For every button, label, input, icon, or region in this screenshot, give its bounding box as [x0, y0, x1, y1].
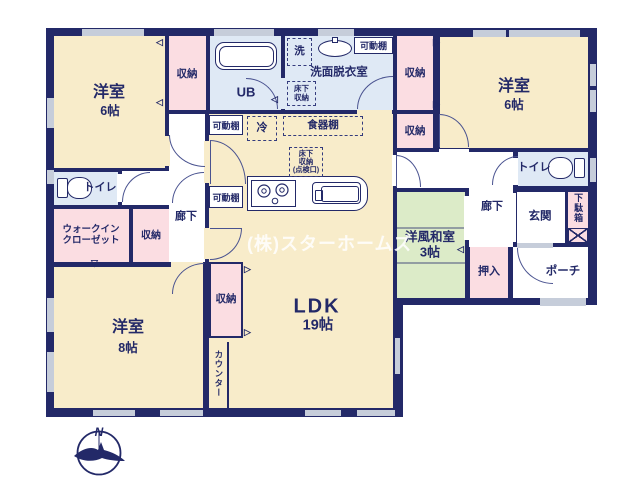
underfloor-inspection-label: (点検口) — [293, 166, 319, 174]
label-ldk: LDK — [293, 296, 340, 319]
watermark: (株)スターホームズ — [247, 230, 412, 256]
label-counter: カウンター — [213, 350, 223, 398]
movable-shelf: 可動棚 — [209, 186, 243, 208]
label-washroom: 洗面脱衣室 — [310, 66, 368, 79]
label-walk-in-closet-line2: クローゼット — [62, 236, 119, 247]
window — [305, 410, 341, 416]
bifold-marker: ▷ — [244, 265, 251, 274]
label-ldk-size: 19帖 — [303, 318, 334, 335]
window — [47, 98, 54, 128]
counter-divider-line — [227, 342, 229, 408]
washbasin-tap-icon — [332, 37, 338, 43]
label-unit-bath: UB — [237, 86, 256, 101]
label-oshiire: 押入 — [478, 266, 500, 279]
bifold-marker: ◁ — [156, 98, 163, 107]
stove-icon — [251, 180, 296, 207]
window — [473, 30, 506, 37]
window — [590, 158, 596, 182]
movable-shelf-label: 可動棚 — [212, 191, 239, 204]
window — [318, 29, 354, 36]
label-japanese-room: 洋風和室 — [405, 230, 455, 244]
door-opening — [357, 110, 392, 115]
underfloor-inspection: 床下 収納 (点検口) — [289, 147, 323, 177]
tatami-line — [397, 262, 465, 264]
label-bedroom-sw-size: 8帖 — [118, 341, 137, 355]
label-hallway-right: 廊下 — [481, 201, 503, 214]
label-entrance: 玄関 — [529, 210, 552, 223]
label-porch: ポーチ — [546, 265, 581, 278]
window — [590, 64, 596, 86]
bifold-marker: ◁ — [156, 38, 163, 47]
label-bedroom-sw: 洋室 — [112, 319, 144, 337]
shoe-cabinet-x-icon — [568, 228, 588, 243]
refrigerator-space: 冷 — [247, 116, 277, 141]
label-bedroom-ne-size: 6帖 — [504, 98, 523, 112]
movable-shelf: 可動棚 — [209, 115, 243, 135]
entrance-step-line — [513, 193, 516, 242]
washer-space: 洗 — [287, 38, 312, 66]
label-toilet-right: トイレ — [518, 162, 551, 175]
floor-plan: 可動棚 可動棚 可動棚 洗 床下 収納 冷 食器棚 床下 収納 (点検口) ◁ … — [0, 0, 640, 480]
label-bedroom-nw: 洋室 — [93, 84, 125, 102]
bathtub-icon — [215, 42, 277, 70]
window — [357, 410, 395, 416]
window — [590, 90, 596, 112]
movable-shelf: 可動棚 — [354, 37, 393, 54]
label-walk-in-closet: ウォークイン クローゼット — [62, 225, 119, 247]
window — [47, 170, 54, 184]
folding-door-marker: ◁ — [271, 95, 278, 104]
window — [214, 29, 274, 36]
label-storage: 収納 — [141, 230, 161, 242]
label-shoe-cabinet: 下駄箱 — [573, 193, 583, 223]
label-bedroom-ne: 洋室 — [498, 78, 530, 96]
refrigerator-label: 冷 — [257, 122, 268, 134]
cupboard-label: 食器棚 — [307, 120, 339, 132]
label-storage: 収納 — [405, 67, 426, 79]
window — [509, 30, 580, 37]
compass-north-label: N — [95, 425, 104, 439]
window — [395, 338, 400, 374]
movable-shelf-label: 可動棚 — [212, 119, 239, 132]
door-opening — [464, 196, 470, 240]
window — [160, 410, 203, 416]
sliding-door-marker: ◁ — [457, 245, 464, 254]
label-japanese-room-size: 3帖 — [420, 246, 440, 261]
tatami-line — [397, 227, 465, 229]
door-opening — [281, 78, 285, 109]
movable-shelf-label: 可動棚 — [360, 39, 387, 52]
window — [82, 29, 144, 36]
label-storage: 収納 — [216, 293, 237, 305]
washer-label: 洗 — [294, 46, 305, 58]
bifold-marker: ▽ — [91, 259, 98, 268]
door-opening — [439, 149, 469, 153]
underfloor-storage-label: 収納 — [294, 94, 309, 102]
bifold-marker: ▷ — [433, 100, 440, 109]
underfloor-storage: 床下 収納 — [287, 81, 316, 106]
toilet-tank-icon — [574, 158, 585, 178]
label-toilet-left: トイレ — [84, 182, 117, 195]
toilet-bowl-icon — [548, 157, 573, 179]
compass-icon: N — [70, 422, 128, 478]
porch-opening — [540, 298, 586, 306]
label-bedroom-nw-size: 6帖 — [100, 104, 119, 118]
label-storage: 収納 — [177, 68, 198, 80]
hallway-right-vertical — [469, 188, 513, 247]
bifold-marker: ▷ — [433, 38, 440, 47]
label-hallway-left: 廊下 — [175, 211, 197, 224]
window — [47, 352, 54, 392]
kitchen-sink-icon — [312, 182, 361, 204]
window — [93, 410, 135, 416]
bifold-marker: ▷ — [244, 328, 251, 337]
cupboard-space: 食器棚 — [283, 116, 363, 136]
label-storage: 収納 — [405, 125, 426, 137]
window — [47, 298, 54, 332]
